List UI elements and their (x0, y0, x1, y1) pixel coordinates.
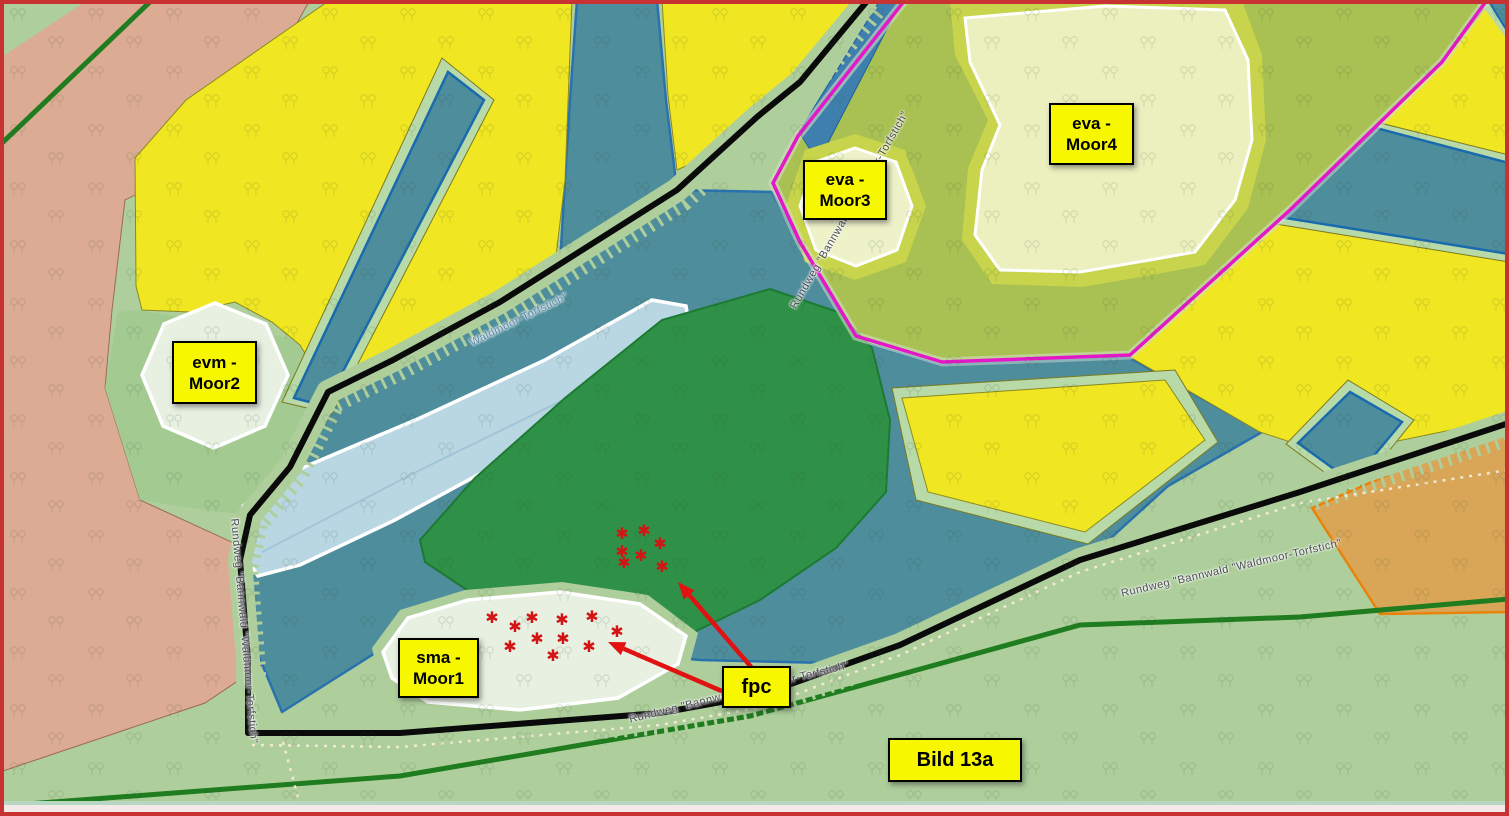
label-line: fpc (724, 676, 789, 698)
red-asterisk-marker: ✱ (530, 629, 543, 648)
red-asterisk-marker: ✱ (615, 524, 628, 543)
red-asterisk-marker: ✱ (617, 553, 630, 572)
red-asterisk-marker: ✱ (610, 622, 623, 641)
red-asterisk-marker: ✱ (655, 557, 668, 576)
map-canvas: ✱✱✱✱✱✱✱✱✱✱✱✱✱✱✱✱✱✱ Rundweg "Bannwald "Wa… (0, 0, 1509, 816)
label-evm-moor2: evm - Moor2 (172, 341, 257, 404)
red-asterisk-marker: ✱ (582, 637, 595, 656)
red-asterisk-marker: ✱ (525, 608, 538, 627)
red-asterisk-marker: ✱ (585, 607, 598, 626)
label-line: eva - (1051, 113, 1132, 134)
label-line: Bild 13a (890, 749, 1020, 771)
red-asterisk-marker: ✱ (653, 534, 666, 553)
label-eva-moor3: eva - Moor3 (803, 160, 887, 220)
label-line: Moor3 (805, 190, 885, 211)
red-asterisk-marker: ✱ (546, 646, 559, 665)
red-asterisk-marker: ✱ (634, 546, 647, 565)
label-bild-13a: Bild 13a (888, 738, 1022, 782)
bottom-strip-green (0, 801, 1509, 805)
label-eva-moor4: eva - Moor4 (1049, 103, 1134, 165)
label-fpc: fpc (722, 666, 791, 708)
red-asterisk-marker: ✱ (503, 637, 516, 656)
label-line: eva - (805, 169, 885, 190)
label-line: sma - (400, 647, 477, 668)
red-asterisk-marker: ✱ (555, 610, 568, 629)
label-line: Moor1 (400, 668, 477, 689)
label-line: evm - (174, 352, 255, 373)
red-asterisk-marker: ✱ (637, 521, 650, 540)
red-asterisk-marker: ✱ (485, 608, 498, 627)
label-line: Moor2 (174, 373, 255, 394)
label-sma-moor1: sma - Moor1 (398, 638, 479, 698)
red-asterisk-marker: ✱ (508, 617, 521, 636)
label-line: Moor4 (1051, 134, 1132, 155)
